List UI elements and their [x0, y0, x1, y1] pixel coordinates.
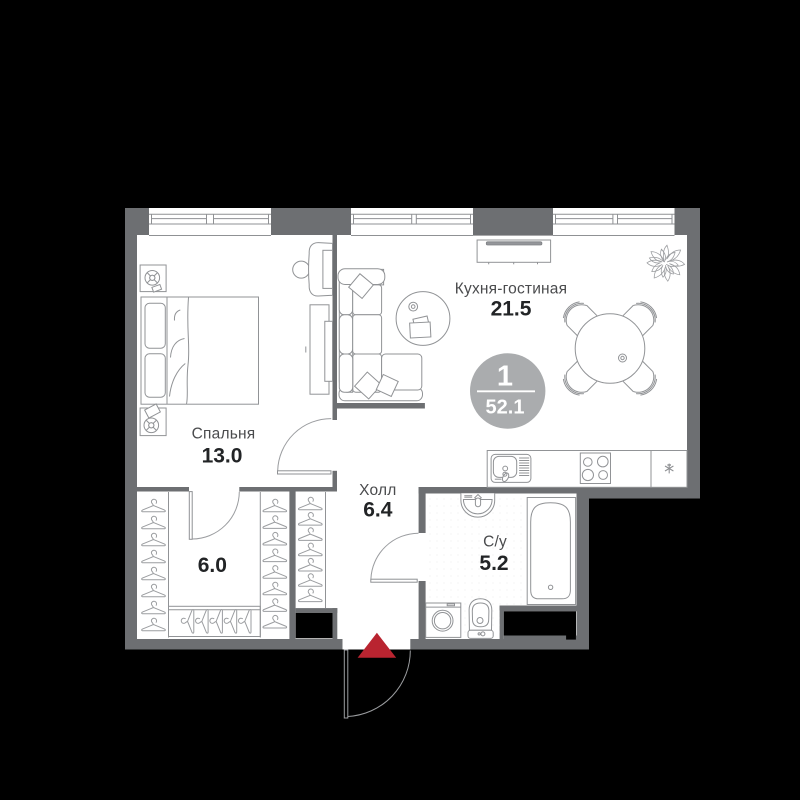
- svg-text:Кухня-гостиная: Кухня-гостиная: [455, 281, 567, 298]
- svg-text:52.1: 52.1: [486, 397, 525, 419]
- svg-text:Спальня: Спальня: [192, 426, 256, 443]
- svg-text:С/у: С/у: [483, 534, 507, 551]
- svg-text:13.0: 13.0: [202, 445, 243, 468]
- svg-text:1: 1: [497, 361, 513, 393]
- svg-text:Холл: Холл: [359, 482, 396, 499]
- svg-text:21.5: 21.5: [491, 298, 532, 321]
- svg-text:6.0: 6.0: [198, 554, 227, 577]
- svg-text:6.4: 6.4: [363, 499, 393, 522]
- svg-text:5.2: 5.2: [479, 552, 508, 575]
